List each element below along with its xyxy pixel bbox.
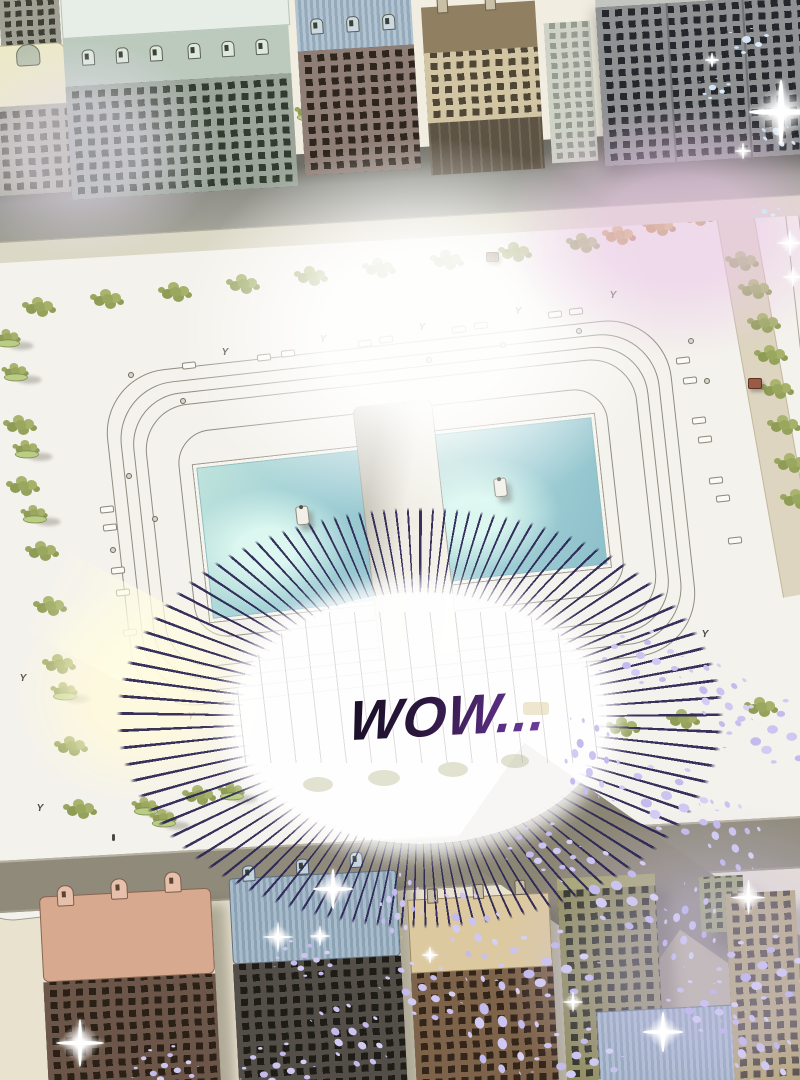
dormer: [382, 14, 396, 31]
tree-autumn: [614, 230, 625, 240]
tree: [54, 659, 65, 669]
tree: [15, 420, 26, 430]
petal-cluster: [272, 1062, 280, 1068]
tree: [102, 294, 113, 304]
dormer: [149, 45, 163, 62]
chimney: [436, 0, 448, 14]
tree: [66, 741, 77, 751]
petal-cluster: [161, 1063, 168, 1069]
bollard: [152, 516, 158, 522]
dormer: [310, 18, 324, 35]
pedestrian: [112, 834, 115, 841]
tree: [45, 601, 56, 611]
building-top-gray: [595, 0, 800, 166]
building-bottom-salmon: [39, 888, 221, 1080]
dormer: [187, 43, 201, 60]
petal-cluster-blue: [761, 209, 767, 214]
petal-cluster: [757, 961, 768, 969]
bollard: [704, 378, 710, 384]
tree: [756, 702, 767, 712]
speech-text: WOW...: [314, 665, 581, 765]
building-top-sliver: [544, 21, 598, 164]
petal-cluster: [636, 652, 645, 659]
tree: [374, 263, 385, 273]
tree: [238, 279, 249, 289]
bollard: [500, 342, 506, 348]
petal-cluster: [541, 957, 552, 966]
bollard: [128, 372, 134, 378]
petal-cluster-blue: [742, 36, 751, 43]
dormer: [110, 878, 128, 900]
building-top-beige: [421, 1, 545, 176]
tree: [30, 509, 39, 517]
petal-cluster: [538, 842, 546, 848]
tree: [759, 318, 770, 328]
building-top-dome: [0, 42, 73, 196]
tree: [442, 255, 453, 265]
tree: [170, 287, 181, 297]
lamp-post: Y: [608, 291, 618, 303]
bollard: [426, 357, 432, 363]
tree: [766, 350, 777, 360]
dormer: [81, 49, 95, 66]
webtoon-panel: Y Y Y Y Y Y Y Y Y: [0, 0, 800, 1080]
dormer: [56, 885, 74, 907]
tree: [750, 284, 761, 294]
tree: [510, 247, 521, 257]
cart: [486, 252, 499, 262]
bollard: [180, 398, 186, 404]
bollard: [688, 338, 694, 344]
ghost-tree: [368, 770, 400, 786]
tree: [578, 238, 589, 248]
petal-cluster: [767, 725, 778, 733]
tree: [34, 302, 45, 312]
cart: [748, 378, 762, 389]
building-top-blue-roof: [295, 0, 422, 177]
tree: [22, 444, 31, 452]
tree: [772, 384, 783, 394]
bollard: [576, 328, 582, 334]
tree: [3, 333, 12, 341]
ghost-tree: [501, 754, 529, 768]
ghost-tree: [438, 762, 468, 777]
lamp-post: Y: [318, 335, 328, 347]
building-top-celadon: [60, 0, 298, 200]
tree: [306, 271, 317, 281]
dormer: [255, 38, 269, 55]
tree: [779, 420, 790, 430]
fountain-statue: [493, 477, 508, 497]
tree: [786, 458, 797, 468]
dormer: [221, 41, 235, 58]
lamp-post: Y: [417, 323, 427, 335]
dormer: [164, 871, 182, 893]
building-bottom-blue-roof: [596, 1004, 740, 1080]
bollard: [110, 547, 116, 553]
tree: [37, 546, 48, 556]
petal-cluster-blue: [709, 85, 716, 91]
dormer: [115, 47, 129, 64]
ghost-tree: [303, 777, 333, 792]
tree: [18, 481, 29, 491]
dome-dormer: [15, 43, 40, 66]
petal-cluster: [301, 953, 308, 958]
lamp-post: Y: [513, 307, 523, 319]
lamp-post: Y: [18, 674, 28, 686]
petal-cluster: [400, 900, 406, 907]
tree: [75, 804, 86, 814]
lamp-post: Y: [220, 348, 230, 360]
dormer: [346, 16, 360, 33]
tree: [792, 494, 800, 504]
chimney: [484, 0, 496, 11]
lamp-post: Y: [35, 804, 45, 816]
tree: [11, 367, 20, 375]
tree: [60, 686, 69, 694]
tree: [737, 256, 748, 266]
bollard: [126, 473, 132, 479]
petal-cluster: [572, 1052, 582, 1060]
